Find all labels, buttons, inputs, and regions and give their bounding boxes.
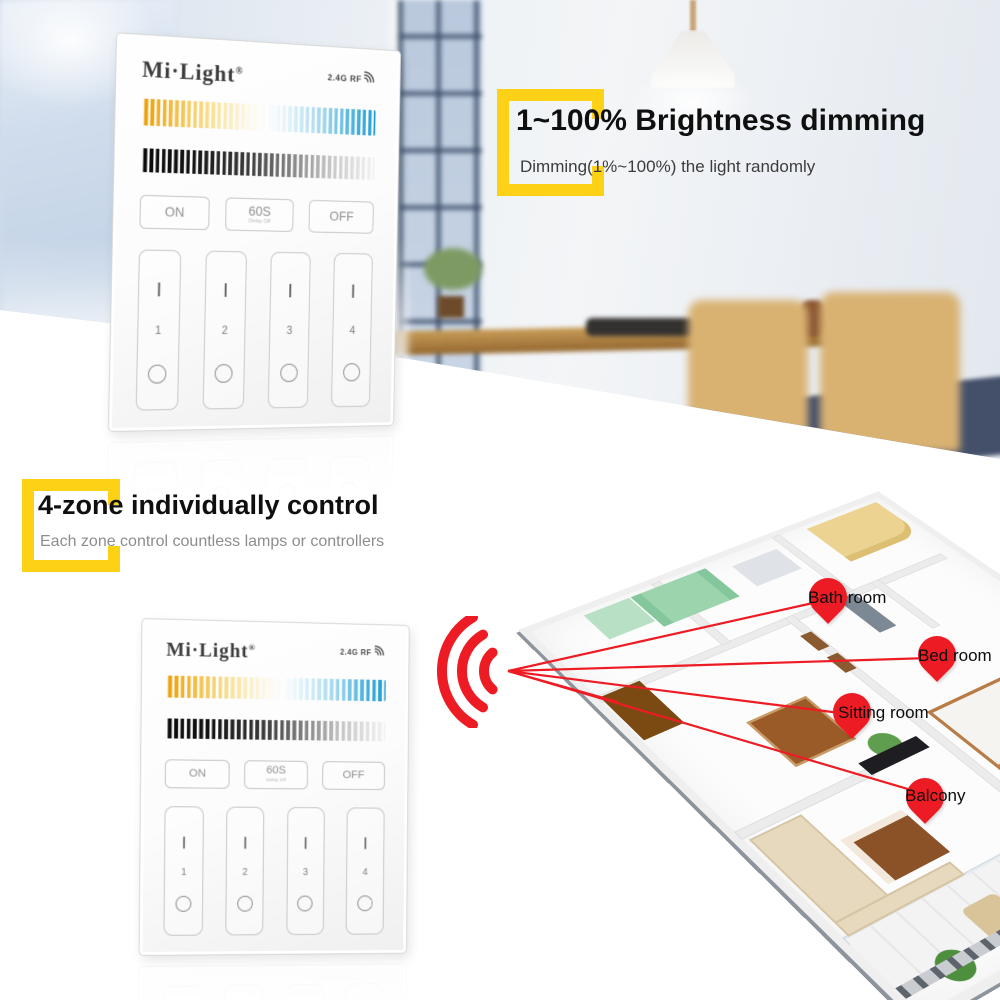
off-button: OFF — [309, 200, 375, 234]
zone-slider-4: |4 — [346, 807, 385, 934]
plant — [424, 248, 482, 290]
tea-set — [586, 318, 696, 336]
on-button: ON — [165, 759, 230, 788]
zone-off-circle — [343, 364, 360, 382]
color-temp-slider — [166, 675, 386, 701]
pin-label-balcony: Balcony — [905, 786, 965, 806]
floorplan — [518, 491, 1000, 1000]
delay-off-button: 60SDelay Off — [225, 198, 293, 233]
pin-label-bathroom: Bath room — [808, 588, 886, 608]
zone-slider-2: |2 — [203, 250, 247, 409]
brightness-slider — [140, 148, 375, 181]
zone-slider-3: |3 — [268, 251, 311, 408]
color-temp-slider — [141, 99, 376, 136]
wifi-signal-icon — [411, 616, 523, 728]
milight-logo: Mi·Light® — [142, 57, 244, 89]
plant-pot — [438, 296, 464, 318]
pendant-lamp-cord — [690, 0, 696, 34]
delay-off-button: 60SDelay Off — [244, 760, 308, 789]
on-button: ON — [139, 195, 210, 230]
bath-fixture — [732, 549, 802, 586]
chair — [820, 292, 960, 452]
zone-off-circle — [215, 364, 233, 383]
window-grid — [388, 0, 482, 438]
zone-slider-2: |2 — [225, 807, 264, 936]
zone-off-circle — [297, 896, 313, 912]
zone-slider-3: |3 — [286, 807, 325, 935]
rf-signal-icon — [373, 644, 385, 657]
product-infographic: 1~100% Brightness dimming Dimming(1%~100… — [0, 0, 1000, 1000]
yellow-wardrobe — [807, 502, 921, 562]
zone-slider-4: |4 — [331, 253, 373, 407]
pin-label-bedroom: Bed room — [918, 646, 992, 666]
brightness-title: 1~100% Brightness dimming — [516, 104, 925, 138]
rf-signal-icon — [363, 69, 376, 84]
zone-off-circle — [237, 896, 253, 912]
zone-slider-1: |1 — [135, 249, 181, 410]
touch-panel-bottom: Mi·Light® 2.4G RF ON 60SDelay Off OFF |1… — [139, 618, 410, 956]
zone-off-circle — [357, 896, 372, 912]
pin-label-sittingroom: Sitting room — [838, 703, 929, 723]
zones-subtitle: Each zone control countless lamps or con… — [40, 533, 384, 551]
rf-label: 2.4G RF — [328, 68, 377, 85]
chair — [0, 334, 120, 444]
brightness-subtitle: Dimming(1%~100%) the light randomly — [520, 157, 815, 177]
milight-logo: Mi·Light® — [166, 640, 256, 664]
zone-off-circle — [280, 364, 297, 382]
brightness-slider — [165, 718, 385, 742]
touch-panel-top: Mi·Light® 2.4G RF ON 60SDelay Off OFF |1… — [108, 32, 401, 432]
zone-slider-1: |1 — [164, 806, 204, 936]
rf-label: 2.4G RF — [340, 644, 386, 658]
zone-off-circle — [148, 365, 166, 384]
zone-off-circle — [175, 896, 191, 912]
zones-title: 4-zone individually control — [38, 490, 379, 521]
off-button: OFF — [322, 761, 385, 790]
chair — [688, 300, 808, 450]
